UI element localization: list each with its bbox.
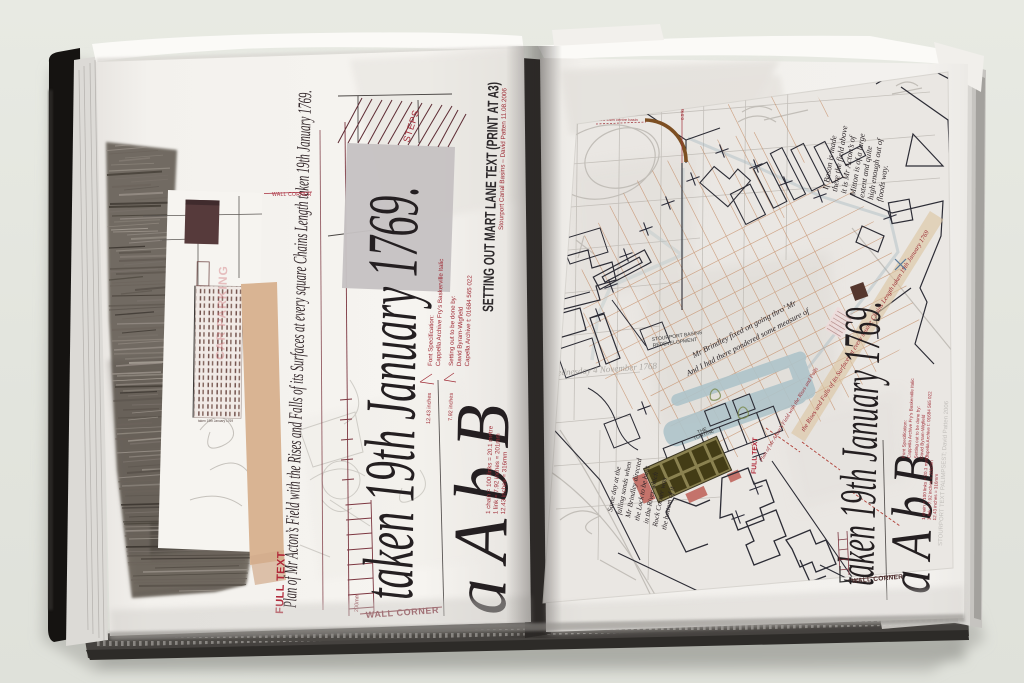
svg-text:12.43 inches: 12.43 inches	[426, 392, 433, 424]
svg-text:taken 19th January 1769: taken 19th January 1769	[198, 419, 233, 423]
svg-text:FULL TEXT: FULL TEXT	[751, 437, 759, 475]
svg-text:7.92 inches: 7.92 inches	[448, 393, 455, 422]
svg-text:taken 19th January 1769.: taken 19th January 1769.	[348, 185, 434, 600]
